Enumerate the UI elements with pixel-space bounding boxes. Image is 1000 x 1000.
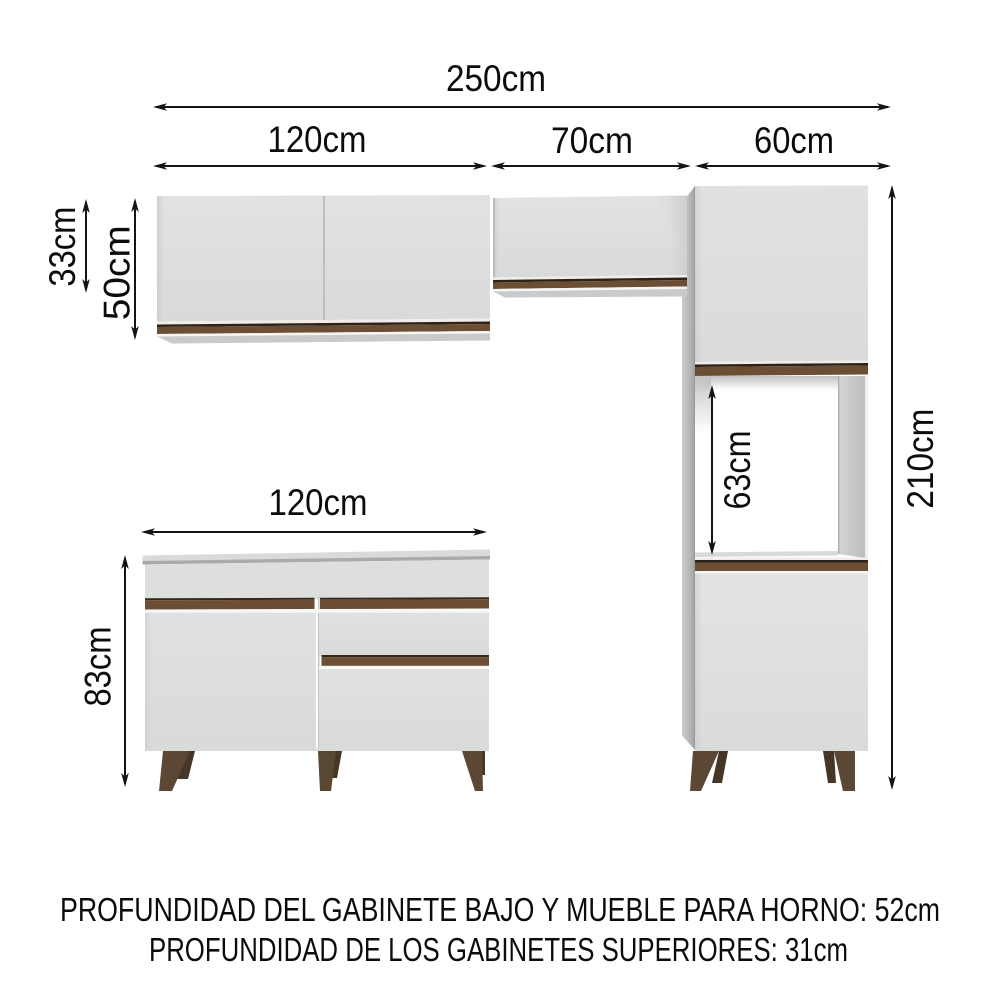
svg-text:PROFUNDIDAD DEL GABINETE BAJO: PROFUNDIDAD DEL GABINETE BAJO Y MUEBLE P…	[60, 891, 940, 928]
svg-text:120cm: 120cm	[269, 482, 368, 523]
svg-text:70cm: 70cm	[551, 120, 633, 161]
svg-text:60cm: 60cm	[754, 120, 834, 161]
svg-text:120cm: 120cm	[268, 119, 367, 160]
svg-text:63cm: 63cm	[717, 431, 758, 510]
svg-text:33cm: 33cm	[42, 207, 83, 287]
svg-text:PROFUNDIDAD DE LOS GABINETES S: PROFUNDIDAD DE LOS GABINETES SUPERIORES:…	[149, 931, 848, 968]
svg-text:50cm: 50cm	[97, 225, 138, 320]
svg-text:250cm: 250cm	[446, 58, 546, 99]
svg-text:210cm: 210cm	[900, 409, 941, 509]
svg-text:83cm: 83cm	[78, 627, 119, 707]
